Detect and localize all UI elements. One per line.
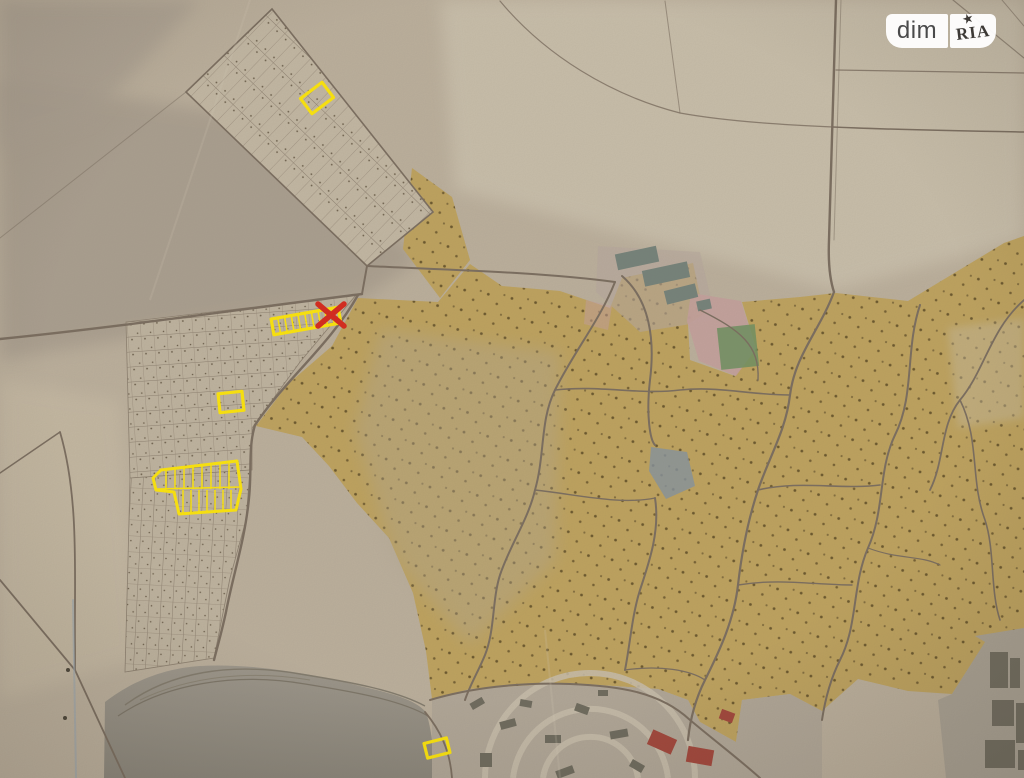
watermark-dim-box: dim (886, 14, 948, 48)
map-photo: dim ★ RIA (0, 0, 1024, 778)
watermark-dim-label: dim (897, 17, 937, 45)
watermark-ria-label: RIA (955, 21, 991, 45)
watermark-dimria: dim ★ RIA (886, 14, 996, 48)
map-svg (0, 0, 1024, 778)
photo-vignette (0, 0, 1024, 778)
watermark-ria-box: ★ RIA (950, 14, 996, 48)
